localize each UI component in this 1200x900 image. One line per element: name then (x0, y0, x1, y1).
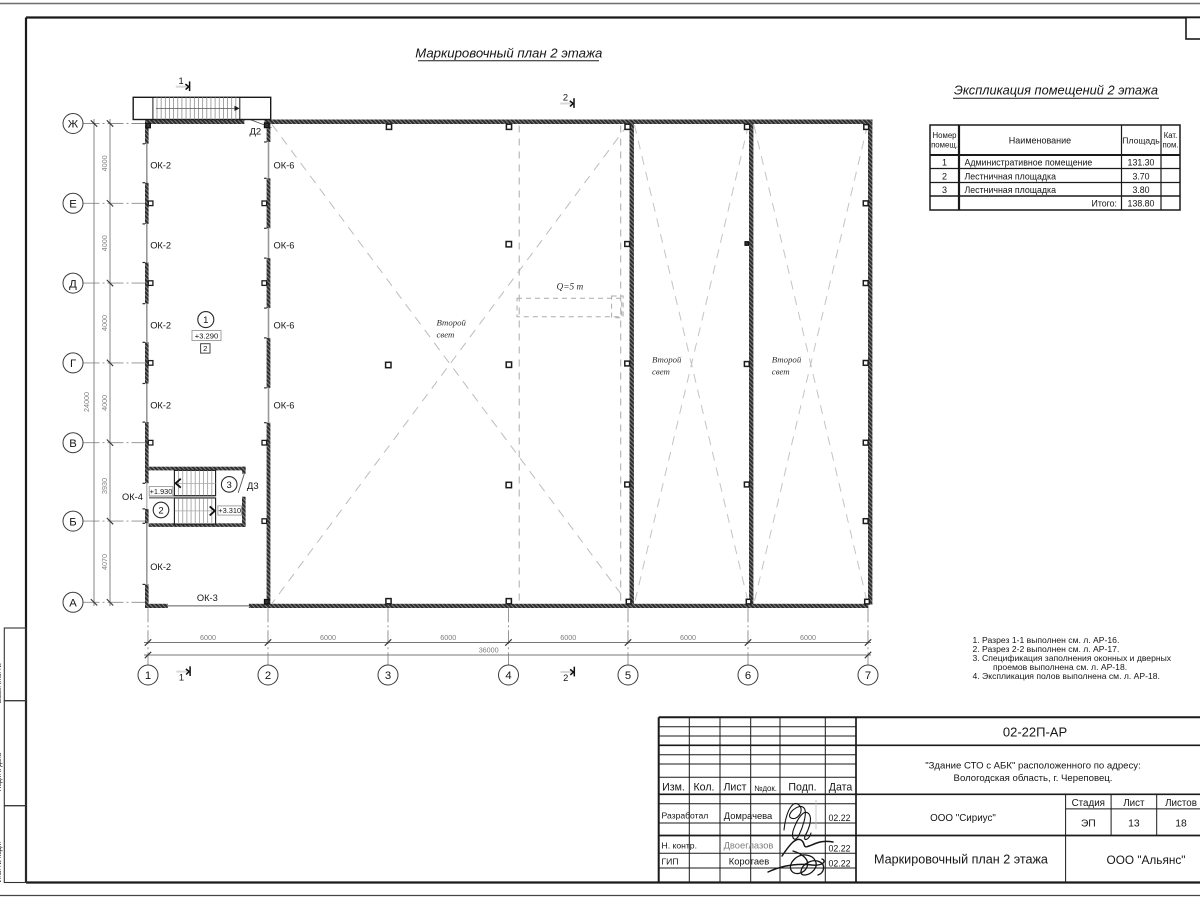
svg-text:Е: Е (69, 199, 77, 211)
svg-text:4070: 4070 (100, 554, 109, 570)
svg-text:13: 13 (1128, 819, 1140, 830)
svg-text:36000: 36000 (479, 645, 499, 654)
svg-text:1: 1 (203, 315, 208, 326)
svg-text:ООО "Сириус": ООО "Сириус" (930, 813, 996, 824)
svg-text:Инв. № подл.: Инв. № подл. (0, 842, 3, 883)
svg-text:3: 3 (227, 480, 232, 491)
svg-text:2: 2 (203, 344, 207, 353)
svg-text:6000: 6000 (200, 633, 216, 642)
svg-text:02.22: 02.22 (828, 858, 850, 868)
svg-text:Второй: Второй (772, 354, 802, 364)
svg-text:Г: Г (70, 358, 76, 370)
svg-text:ГИП: ГИП (662, 856, 679, 866)
svg-text:свет: свет (437, 330, 455, 340)
svg-text:Лист: Лист (723, 782, 746, 794)
svg-text:Листов: Листов (1165, 798, 1197, 809)
svg-text:Вологодская область, г. Черепо: Вологодская область, г. Череповец. (954, 773, 1113, 784)
svg-text:Лестничная площадка: Лестничная площадка (965, 171, 1057, 181)
svg-text:Маркировочный план 2 этажа: Маркировочный план 2 этажа (415, 46, 602, 61)
svg-text:Дата: Дата (829, 782, 853, 794)
svg-text:3.70: 3.70 (1132, 171, 1149, 181)
svg-text:Маркировочный план 2 этажа: Маркировочный план 2 этажа (874, 853, 1048, 867)
svg-text:ОК-2: ОК-2 (150, 562, 171, 572)
svg-text:Наименование: Наименование (1009, 136, 1071, 146)
svg-text:4000: 4000 (100, 395, 109, 411)
svg-text:Стадия: Стадия (1072, 798, 1105, 809)
svg-text:Кол.: Кол. (694, 782, 715, 794)
svg-text:Ж: Ж (68, 119, 79, 131)
svg-text:4000: 4000 (100, 155, 109, 171)
svg-text:Б: Б (69, 516, 76, 528)
svg-text:1: 1 (179, 76, 184, 86)
svg-text:3930: 3930 (100, 478, 109, 494)
svg-text:4. Экспликация полов выполнена: 4. Экспликация полов выполнена см. л. АР… (973, 671, 1160, 681)
svg-text:6: 6 (745, 670, 751, 682)
svg-text:02.22: 02.22 (828, 813, 850, 823)
svg-text:6000: 6000 (800, 633, 816, 642)
svg-text:6000: 6000 (440, 633, 456, 642)
svg-text:ОК-3: ОК-3 (197, 593, 218, 603)
svg-text:+1.930: +1.930 (150, 487, 173, 496)
svg-text:2: 2 (563, 93, 568, 103)
svg-text:7: 7 (865, 670, 871, 682)
svg-text:138.80: 138.80 (1128, 198, 1155, 208)
svg-text:Д: Д (69, 278, 77, 290)
svg-text:Экспликация помещений 2 этажа: Экспликация помещений 2 этажа (954, 83, 1158, 98)
svg-text:Домрачева: Домрачева (724, 810, 773, 821)
svg-text:18: 18 (1175, 819, 1187, 830)
svg-text:Итого:: Итого: (1092, 198, 1118, 208)
svg-text:ОК-2: ОК-2 (150, 401, 171, 411)
svg-text:02.22: 02.22 (828, 843, 850, 853)
svg-text:+3.290: +3.290 (195, 331, 218, 340)
svg-text:3: 3 (385, 670, 391, 682)
svg-text:Лестничная площадка: Лестничная площадка (965, 185, 1057, 195)
svg-text:Д2: Д2 (250, 127, 262, 138)
svg-text:24000: 24000 (82, 392, 91, 412)
svg-text:1: 1 (145, 670, 151, 682)
svg-text:6000: 6000 (320, 633, 336, 642)
svg-text:3.80: 3.80 (1132, 185, 1149, 195)
svg-text:2: 2 (265, 670, 271, 682)
svg-text:4000: 4000 (100, 235, 109, 251)
svg-text:Второй: Второй (652, 354, 682, 364)
svg-text:ОК-2: ОК-2 (150, 241, 171, 251)
svg-text:131.30: 131.30 (1128, 157, 1155, 167)
svg-text:Номер: Номер (933, 131, 958, 140)
svg-text:Д3: Д3 (247, 481, 259, 492)
svg-text:02-22П-АР: 02-22П-АР (1003, 725, 1067, 740)
svg-text:4: 4 (505, 670, 511, 682)
svg-text:5: 5 (625, 670, 631, 682)
svg-text:ООО "Альянс": ООО "Альянс" (1107, 853, 1186, 867)
svg-text:Второй: Второй (437, 318, 467, 328)
svg-text:ОК-6: ОК-6 (274, 401, 295, 411)
svg-text:4000: 4000 (100, 315, 109, 331)
svg-text:Лист: Лист (1123, 798, 1145, 809)
svg-text:1: 1 (942, 157, 947, 167)
svg-text:1: 1 (179, 673, 184, 683)
svg-text:Кат.: Кат. (1164, 131, 1178, 140)
svg-text:Площадь: Площадь (1122, 136, 1160, 146)
svg-text:свет: свет (772, 366, 790, 376)
svg-text:Административное помещение: Административное помещение (965, 157, 1093, 167)
svg-text:пом.: пом. (1162, 141, 1178, 150)
svg-text:"Здание СТО с АБК" расположенн: "Здание СТО с АБК" расположенного по адр… (925, 761, 1141, 772)
svg-text:6000: 6000 (680, 633, 696, 642)
svg-text:Двоеглазов: Двоеглазов (724, 840, 774, 851)
svg-text:2: 2 (942, 171, 947, 181)
svg-text:Подп.: Подп. (788, 782, 816, 794)
svg-text:Взам. инв. №: Взам. инв. № (0, 663, 3, 703)
svg-text:ОК-4: ОК-4 (122, 492, 143, 502)
svg-text:+3.310: +3.310 (218, 506, 241, 515)
svg-text:ЭП: ЭП (1081, 819, 1096, 830)
svg-text:Н. контр.: Н. контр. (662, 840, 697, 850)
svg-text:ОК-6: ОК-6 (274, 241, 295, 251)
svg-text:6000: 6000 (560, 633, 576, 642)
svg-text:помещ.: помещ. (931, 141, 958, 150)
svg-text:свет: свет (652, 366, 670, 376)
svg-text:2: 2 (158, 506, 163, 517)
svg-text:Коротаев: Коротаев (729, 856, 770, 867)
svg-text:ОК-6: ОК-6 (274, 161, 295, 171)
svg-text:Разработал: Разработал (662, 811, 709, 821)
svg-text:Изм.: Изм. (662, 782, 685, 794)
svg-text:В: В (69, 438, 77, 450)
svg-text:Подп. и дата: Подп. и дата (0, 752, 3, 791)
svg-text:3: 3 (942, 185, 947, 195)
svg-text:ОК-2: ОК-2 (150, 321, 171, 331)
svg-text:2: 2 (563, 673, 568, 683)
svg-text:Q=5 т: Q=5 т (557, 283, 584, 293)
svg-text:ОК-2: ОК-2 (150, 161, 171, 171)
svg-text:А: А (69, 598, 77, 610)
svg-text:ОК-6: ОК-6 (274, 321, 295, 331)
svg-text:№док.: №док. (754, 784, 777, 793)
